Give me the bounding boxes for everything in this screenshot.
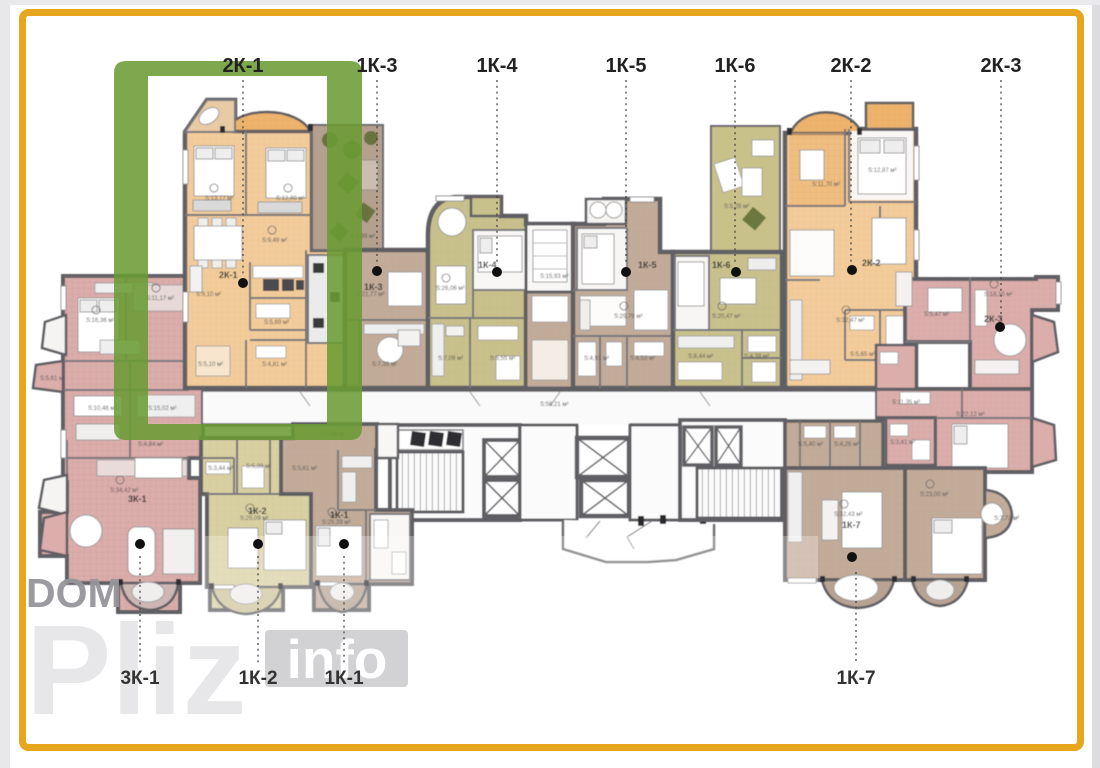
svg-text:S:5,61 м²: S:5,61 м² [292, 466, 317, 472]
svg-text:S:5,39 м²: S:5,39 м² [246, 464, 271, 470]
svg-text:S:5,69 м²: S:5,69 м² [264, 320, 289, 326]
svg-text:S:9,10 м²: S:9,10 м² [196, 292, 221, 298]
svg-text:S:5,61 м²: S:5,61 м² [40, 376, 65, 382]
svg-text:S:4,81 м²: S:4,81 м² [262, 362, 287, 368]
svg-text:S:56,21 м²: S:56,21 м² [540, 402, 568, 408]
svg-text:1К-4: 1К-4 [476, 55, 518, 77]
svg-text:1К-2: 1К-2 [248, 506, 267, 516]
svg-text:S:32,47 м²: S:32,47 м² [836, 318, 864, 324]
svg-text:2К-2: 2К-2 [830, 55, 871, 77]
svg-text:1К-1: 1К-1 [330, 510, 349, 520]
svg-text:2К-1: 2К-1 [222, 55, 263, 77]
svg-text:S:26,06 м²: S:26,06 м² [436, 286, 464, 292]
svg-text:S:11,17 м²: S:11,17 м² [146, 296, 174, 302]
svg-text:3К-1: 3К-1 [120, 668, 159, 689]
svg-text:S:5,28 м²: S:5,28 м² [724, 204, 749, 210]
svg-text:S:4,91 м²: S:4,91 м² [584, 356, 609, 362]
svg-text:S:7,72 м²: S:7,72 м² [994, 516, 1019, 522]
svg-text:S:29,79 м²: S:29,79 м² [614, 314, 642, 320]
svg-text:S:5,55 м²: S:5,55 м² [490, 356, 515, 362]
svg-text:2К-3: 2К-3 [980, 55, 1021, 77]
svg-text:2К-1: 2К-1 [219, 270, 238, 280]
svg-text:S:25,09 м²: S:25,09 м² [240, 516, 268, 522]
svg-text:S:5,10 м²: S:5,10 м² [198, 362, 223, 368]
svg-text:1К-6: 1К-6 [712, 260, 731, 270]
svg-text:S:3,44 м²: S:3,44 м² [208, 466, 233, 472]
svg-text:1К-3: 1К-3 [364, 282, 383, 292]
svg-text:S:11,35 м²: S:11,35 м² [892, 400, 920, 406]
svg-text:S:4,84 м²: S:4,84 м² [138, 442, 163, 448]
svg-text:S:15,02 м²: S:15,02 м² [148, 406, 176, 412]
svg-text:S:20,47 м²: S:20,47 м² [712, 314, 740, 320]
svg-text:S:7,35 м²: S:7,35 м² [372, 362, 397, 368]
svg-text:2К-2: 2К-2 [862, 258, 881, 268]
svg-text:S:10,46 м²: S:10,46 м² [88, 406, 116, 412]
svg-text:S:4,53 м²: S:4,53 м² [630, 356, 655, 362]
svg-text:S:23,00 м²: S:23,00 м² [920, 492, 948, 498]
svg-text:S:12,87 м²: S:12,87 м² [868, 168, 896, 174]
svg-text:S:11,70 м²: S:11,70 м² [812, 182, 840, 188]
svg-text:S:7,09 м²: S:7,09 м² [438, 356, 463, 362]
svg-text:S:9,49 м²: S:9,49 м² [262, 238, 287, 244]
svg-text:1К-3: 1К-3 [356, 55, 397, 77]
svg-text:S:22,12 м²: S:22,12 м² [956, 412, 984, 418]
svg-text:1К-5: 1К-5 [605, 55, 646, 77]
svg-text:S:16,36 м²: S:16,36 м² [86, 318, 114, 324]
svg-text:S:5,40 м²: S:5,40 м² [798, 442, 823, 448]
svg-text:S:12,80 м²: S:12,80 м² [276, 196, 304, 202]
svg-text:S:32,43 м²: S:32,43 м² [834, 512, 862, 518]
svg-text:S:3,41 м²: S:3,41 м² [890, 440, 915, 446]
svg-text:S:8,44 м²: S:8,44 м² [688, 354, 713, 360]
svg-text:S:18,10 м²: S:18,10 м² [984, 292, 1012, 298]
svg-text:1К-6: 1К-6 [714, 55, 755, 77]
svg-text:1К-2: 1К-2 [238, 668, 277, 689]
svg-text:S:4,38 м²: S:4,38 м² [744, 354, 769, 360]
svg-text:S:15,93 м²: S:15,93 м² [540, 274, 568, 280]
svg-text:S:5,65 м²: S:5,65 м² [850, 352, 875, 358]
svg-text:1К-5: 1К-5 [638, 260, 657, 270]
svg-text:S:5,47 м²: S:5,47 м² [924, 312, 949, 318]
svg-text:S:13,17 м²: S:13,17 м² [205, 196, 233, 202]
svg-text:S:25,39 м²: S:25,39 м² [322, 520, 350, 526]
svg-text:1К-1: 1К-1 [324, 668, 363, 689]
svg-text:1К-7: 1К-7 [836, 668, 875, 689]
svg-text:3К-1: 3К-1 [128, 494, 147, 504]
svg-text:S:4,26 м²: S:4,26 м² [834, 442, 859, 448]
svg-text:1К-7: 1К-7 [842, 520, 861, 530]
